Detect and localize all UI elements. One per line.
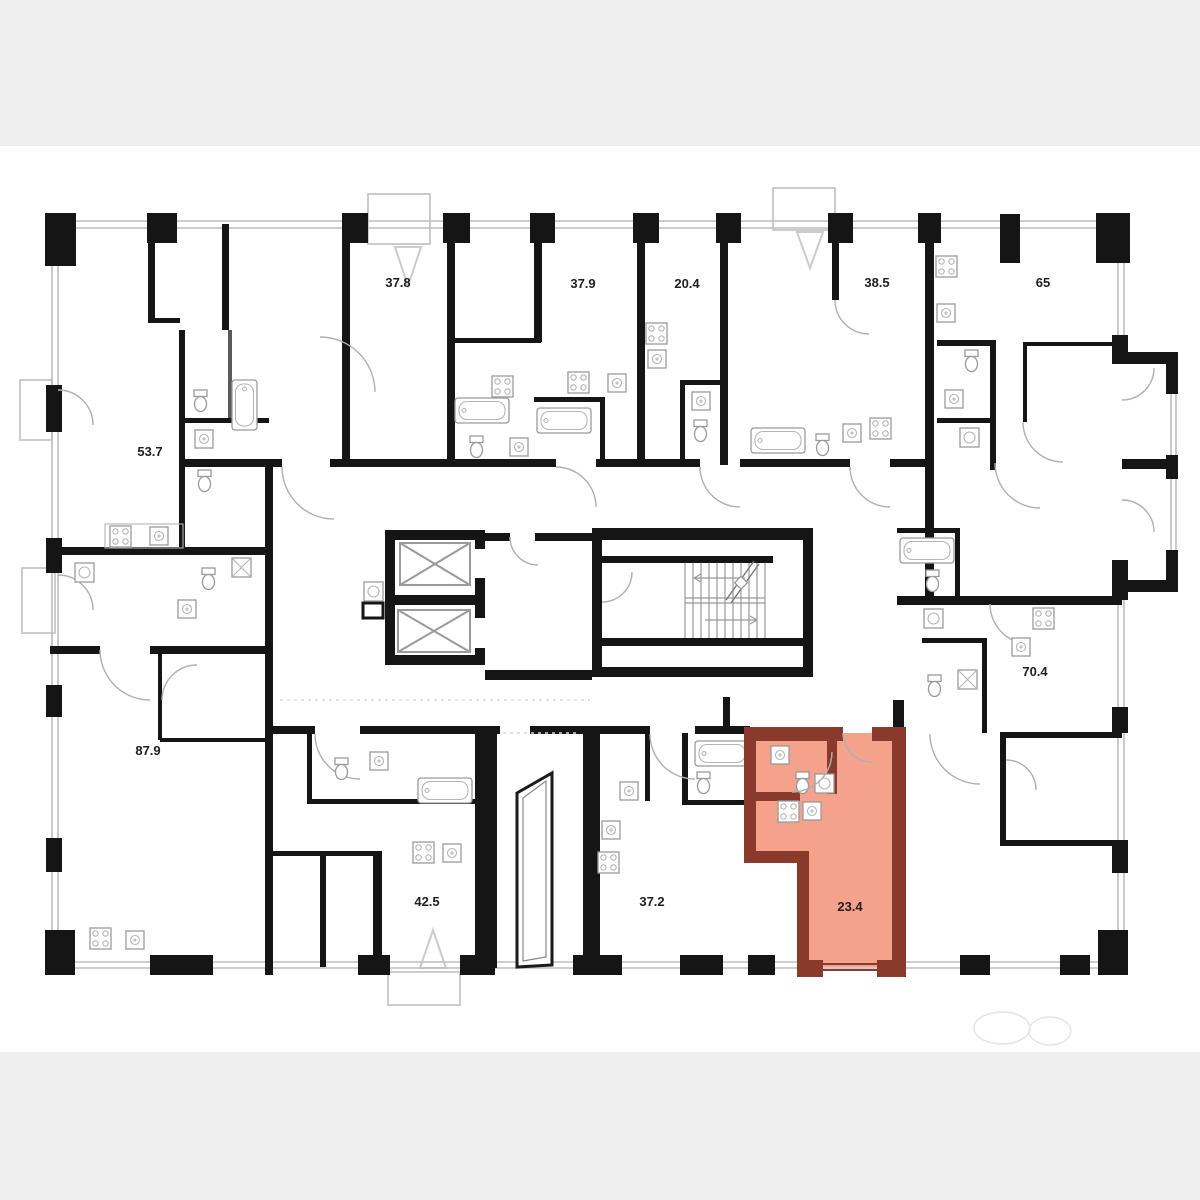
area-label-37-9: 37.9 bbox=[570, 276, 595, 291]
internal-walls bbox=[50, 224, 1122, 975]
selected-unit-23-4[interactable]: 23.4 bbox=[744, 727, 906, 977]
area-label-37-8: 37.8 bbox=[385, 275, 410, 290]
staircase bbox=[485, 528, 813, 680]
door-arcs bbox=[58, 300, 1154, 790]
area-label-70-4: 70.4 bbox=[1022, 664, 1048, 679]
area-label-42-5: 42.5 bbox=[414, 894, 439, 909]
area-label-53-7: 53.7 bbox=[137, 444, 162, 459]
area-label-37-2: 37.2 bbox=[639, 894, 664, 909]
floor-plan-drawing: 23.4 53.7 37.8 37.9 20.4 38.5 65 87.9 42… bbox=[0, 0, 1200, 1200]
chute-icon bbox=[364, 582, 383, 601]
area-label-23-4: 23.4 bbox=[837, 899, 863, 914]
elevator-shaft-2 bbox=[398, 610, 470, 652]
area-label-87-9: 87.9 bbox=[135, 743, 160, 758]
area-label-20-4: 20.4 bbox=[674, 276, 700, 291]
entry-door-elevation bbox=[503, 733, 580, 967]
stair-treads bbox=[685, 561, 765, 638]
area-label-65: 65 bbox=[1036, 275, 1050, 290]
floor-plan-page: 23.4 53.7 37.8 37.9 20.4 38.5 65 87.9 42… bbox=[0, 0, 1200, 1200]
elevator-shaft-1 bbox=[400, 543, 470, 585]
elevator-core bbox=[363, 530, 485, 665]
area-label-38-5: 38.5 bbox=[864, 275, 889, 290]
selected-unit-area[interactable] bbox=[750, 733, 900, 967]
